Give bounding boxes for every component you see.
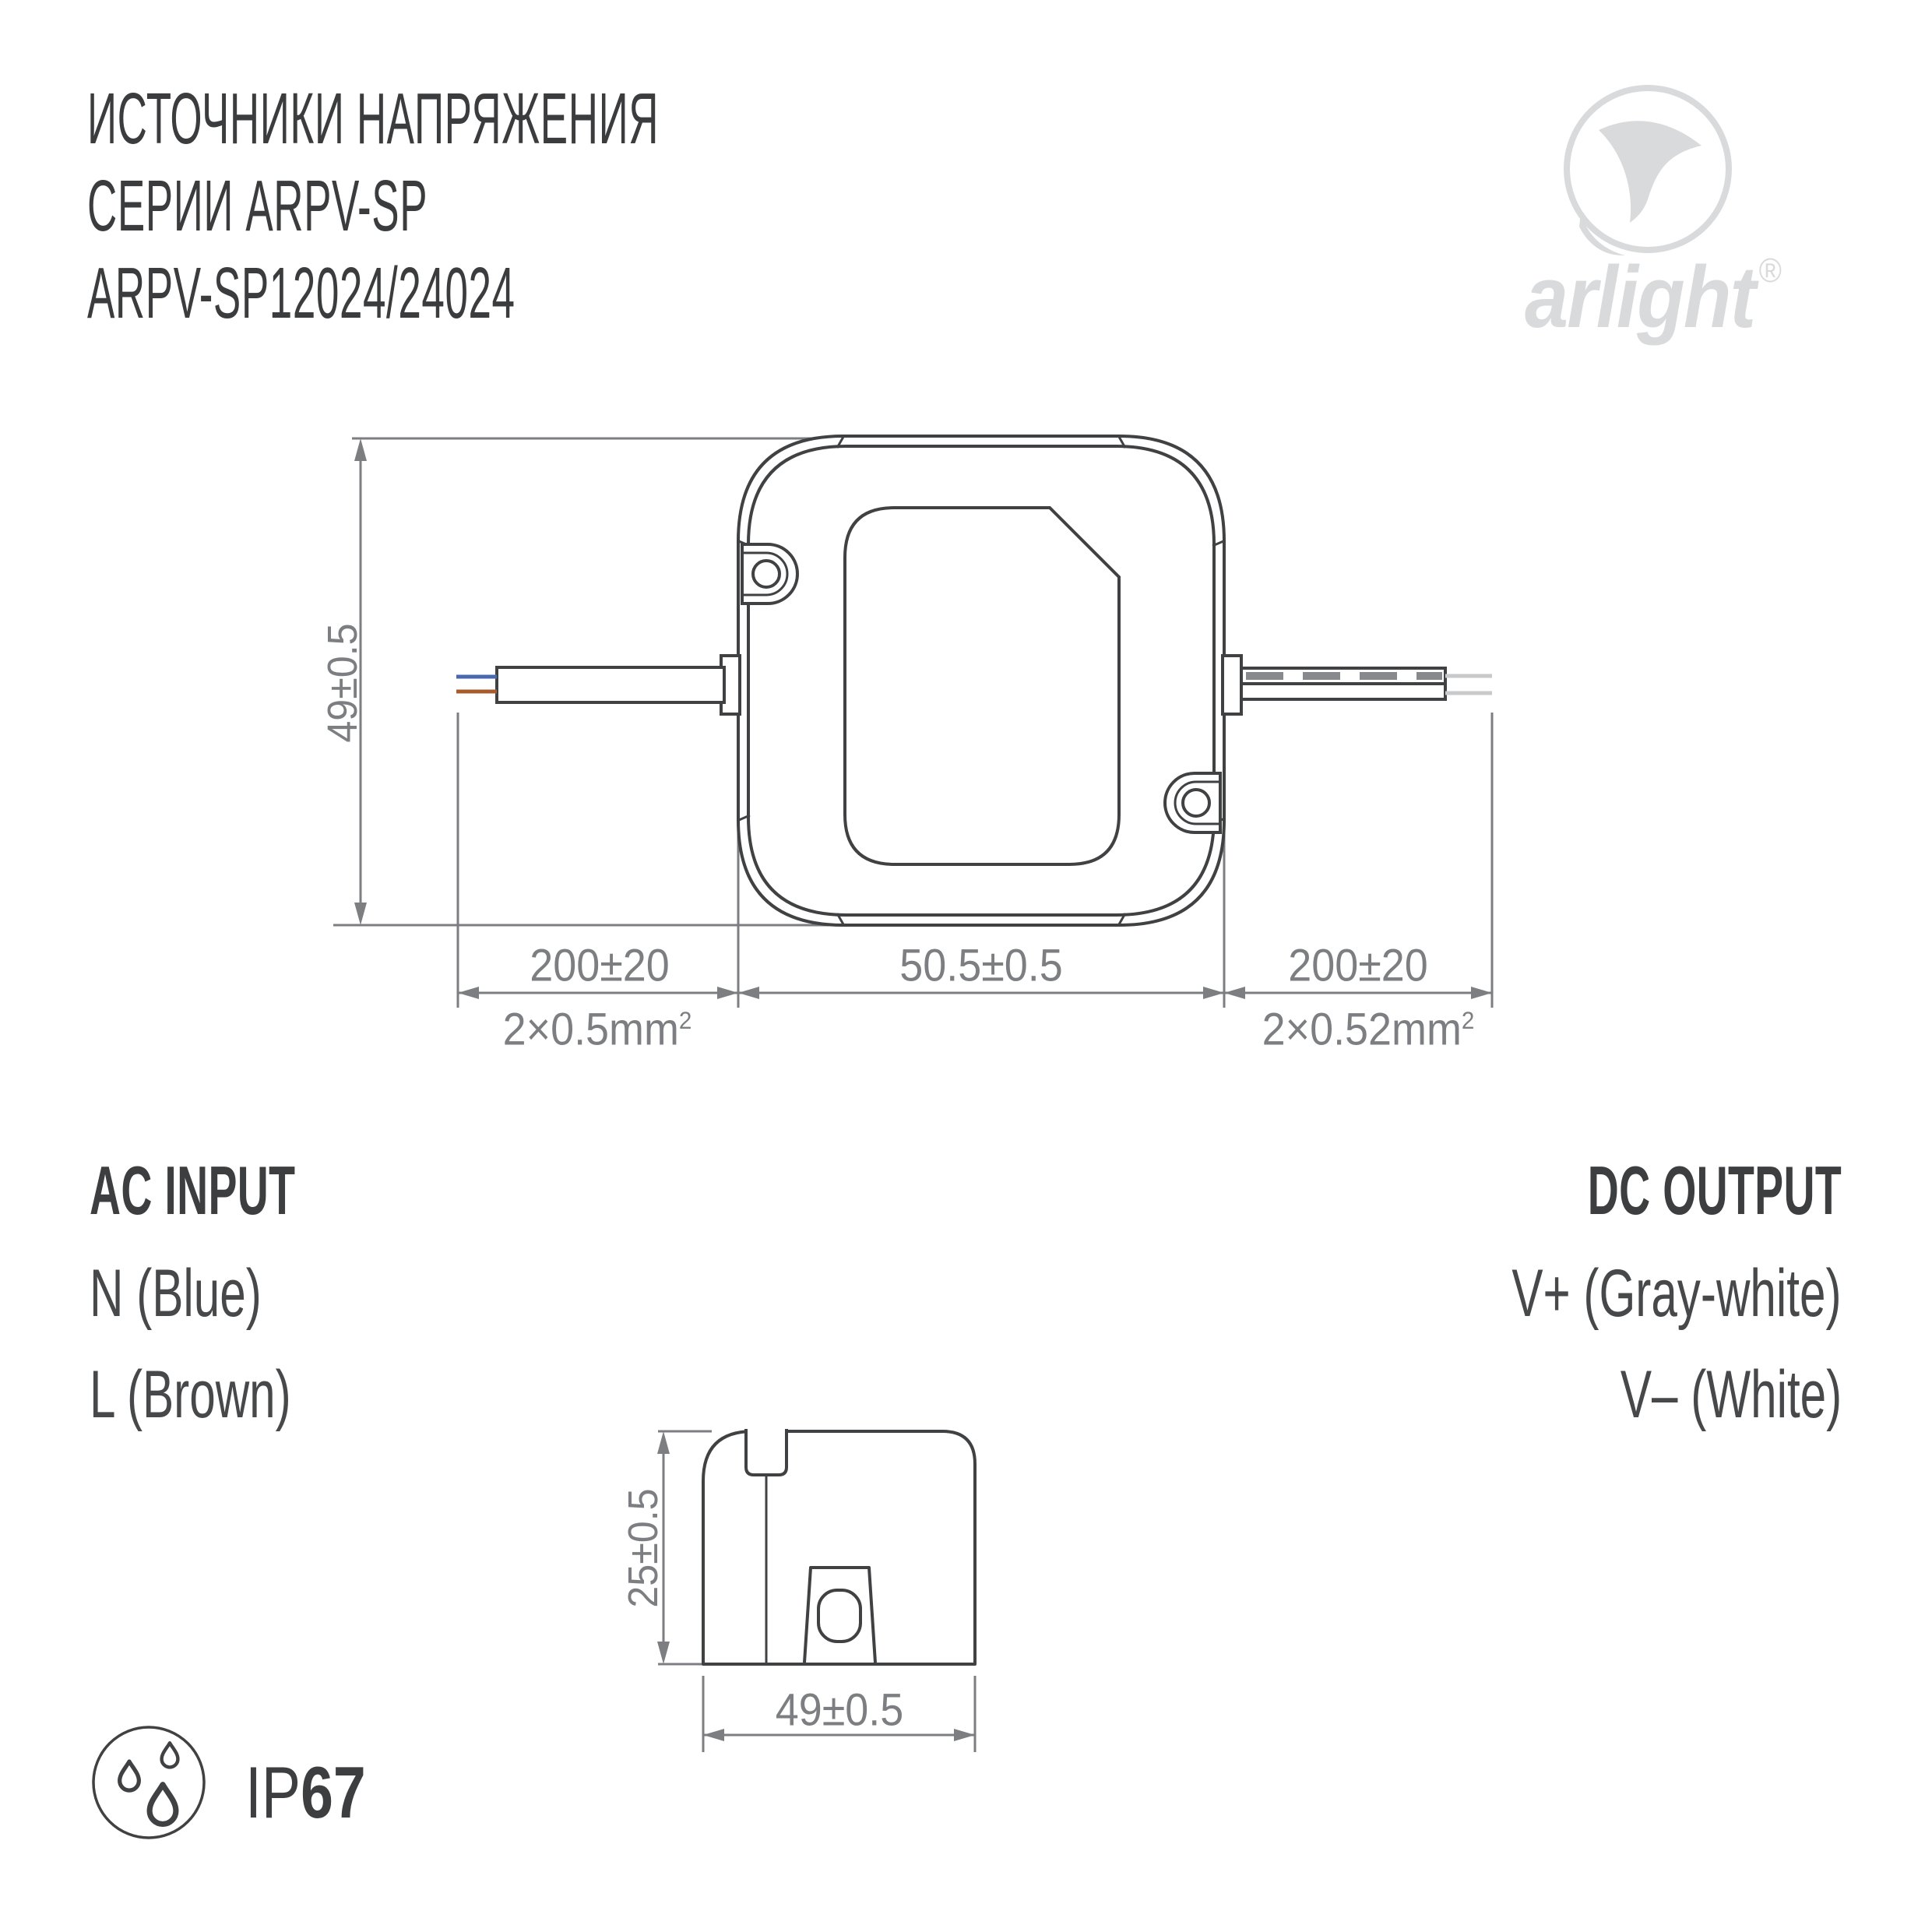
input-wire-spec-base: 2×0.5mm (503, 1005, 679, 1055)
side-view-width-dimension: 49±0.5 (776, 1684, 904, 1737)
ac-input-section: AC INPUT N (Blue) L (Brown) (90, 1151, 790, 1230)
arlight-logo-swoosh-icon (1550, 74, 1752, 269)
logo-brand-text: arlight (1525, 248, 1754, 346)
input-wire-length-dimension: 200±20 (530, 940, 670, 992)
page-title: ИСТОЧНИКИ НАПРЯЖЕНИЯ СЕРИИ ARPV-SP ARPV-… (87, 75, 1090, 336)
body-inner-cover (845, 508, 1119, 864)
device-side-view-drawing (592, 1402, 1246, 1775)
dc-output-vplus-label: V+ (Gray-white) (1512, 1255, 1842, 1332)
ac-input-neutral-label: N (Blue) (90, 1255, 262, 1332)
title-line-3: ARPV-SP12024/24024 (87, 249, 659, 336)
side-view-height-dimension: 25±0.5 (619, 1488, 667, 1607)
mounting-ear-bottom-right (1165, 773, 1220, 832)
output-wire-spec-base: 2×0.52mm (1262, 1005, 1462, 1055)
ac-input-cable (456, 656, 740, 714)
logo-wordmark: arlight® (1525, 247, 1776, 347)
bottom-mounting-foot (804, 1568, 875, 1663)
cable-recess-notch (746, 1429, 787, 1475)
device-top-view-drawing (296, 405, 1557, 1028)
output-wire-spec-sup: 2 (1462, 1006, 1475, 1034)
registered-trademark-icon: ® (1759, 252, 1780, 290)
ip-rating-badge: IP67 (80, 1712, 547, 1860)
title-line-2: СЕРИИ ARPV-SP (87, 162, 659, 249)
dc-output-section: DC OUTPUT V+ (Gray-white) V– (White) (1141, 1151, 1842, 1230)
dc-output-cable (1223, 656, 1492, 714)
top-view-height-dimension: 49±0.5 (318, 623, 367, 742)
ac-input-title: AC INPUT (90, 1151, 531, 1230)
output-wire-spec: 2×0.52mm2 (1262, 1004, 1475, 1056)
mounting-ear-top-left (742, 544, 797, 604)
output-wire-length-dimension: 200±20 (1288, 940, 1428, 992)
input-wire-spec-sup: 2 (679, 1006, 692, 1034)
ip-rating-text: IP67 (245, 1751, 366, 1835)
input-wire-spec: 2×0.5mm2 (503, 1004, 692, 1056)
ip-value: 67 (301, 1751, 366, 1833)
dc-output-title: DC OUTPUT (1400, 1151, 1842, 1230)
datasheet-page: { "header": { "title_lines": ["ИСТОЧНИКИ… (0, 0, 1932, 1932)
body-width-dimension: 50.5±0.5 (899, 940, 1063, 992)
ip-prefix: IP (245, 1751, 301, 1833)
ac-input-line-label: L (Brown) (90, 1357, 291, 1434)
foot-slot-hole (818, 1590, 860, 1642)
dc-output-vminus-label: V– (White) (1621, 1357, 1842, 1434)
title-line-1: ИСТОЧНИКИ НАПРЯЖЕНИЯ (87, 75, 659, 162)
water-drops-icon (80, 1712, 220, 1852)
arlight-logo: arlight® (1550, 74, 1908, 339)
